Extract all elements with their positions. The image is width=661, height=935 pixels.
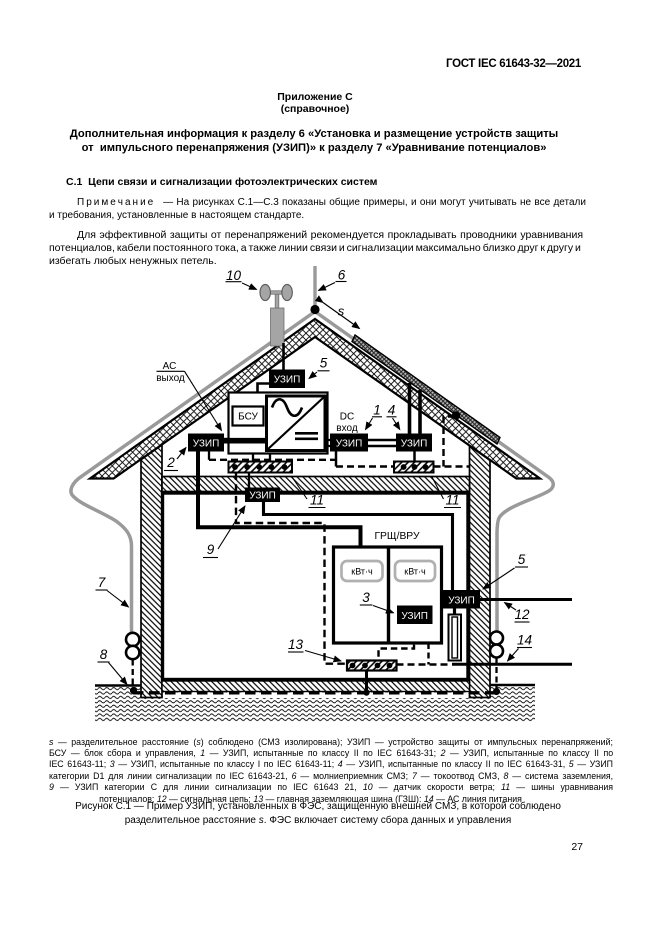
svg-text:УЗИП: УЗИП bbox=[249, 491, 276, 502]
svg-text:УЗИП: УЗИП bbox=[193, 439, 220, 450]
svg-text:УЗИП: УЗИП bbox=[274, 375, 301, 386]
svg-text:11: 11 bbox=[445, 493, 459, 508]
svg-text:2: 2 bbox=[166, 455, 175, 470]
svg-text:6: 6 bbox=[338, 268, 346, 283]
svg-text:УЗИП: УЗИП bbox=[401, 611, 428, 622]
svg-text:s: s bbox=[338, 304, 345, 319]
svg-text:АС: АС bbox=[163, 361, 177, 372]
svg-text:вход: вход bbox=[336, 423, 358, 434]
svg-text:14: 14 bbox=[517, 633, 532, 648]
svg-text:9: 9 bbox=[207, 542, 215, 557]
svg-text:кВт·ч: кВт·ч bbox=[404, 567, 426, 577]
svg-text:УЗИП: УЗИП bbox=[448, 596, 475, 607]
svg-text:7: 7 bbox=[98, 575, 106, 590]
svg-text:DC: DC bbox=[340, 412, 354, 423]
svg-text:кВт·ч: кВт·ч bbox=[351, 567, 373, 577]
svg-text:ГРЩ/ВРУ: ГРЩ/ВРУ bbox=[374, 531, 419, 542]
svg-text:УЗИП: УЗИП bbox=[336, 439, 363, 450]
svg-text:13: 13 bbox=[288, 637, 304, 652]
svg-text:3: 3 bbox=[362, 590, 370, 605]
svg-text:УЗИП: УЗИП bbox=[401, 439, 428, 450]
svg-text:выход: выход bbox=[156, 373, 185, 384]
svg-text:1: 1 bbox=[373, 403, 381, 418]
svg-text:5: 5 bbox=[518, 552, 526, 567]
svg-text:4: 4 bbox=[388, 403, 396, 418]
svg-text:5: 5 bbox=[320, 356, 328, 371]
svg-text:11: 11 bbox=[310, 493, 324, 508]
svg-text:8: 8 bbox=[100, 647, 108, 662]
svg-text:10: 10 bbox=[226, 268, 242, 283]
svg-text:БСУ: БСУ bbox=[238, 412, 258, 423]
svg-text:12: 12 bbox=[514, 607, 530, 622]
